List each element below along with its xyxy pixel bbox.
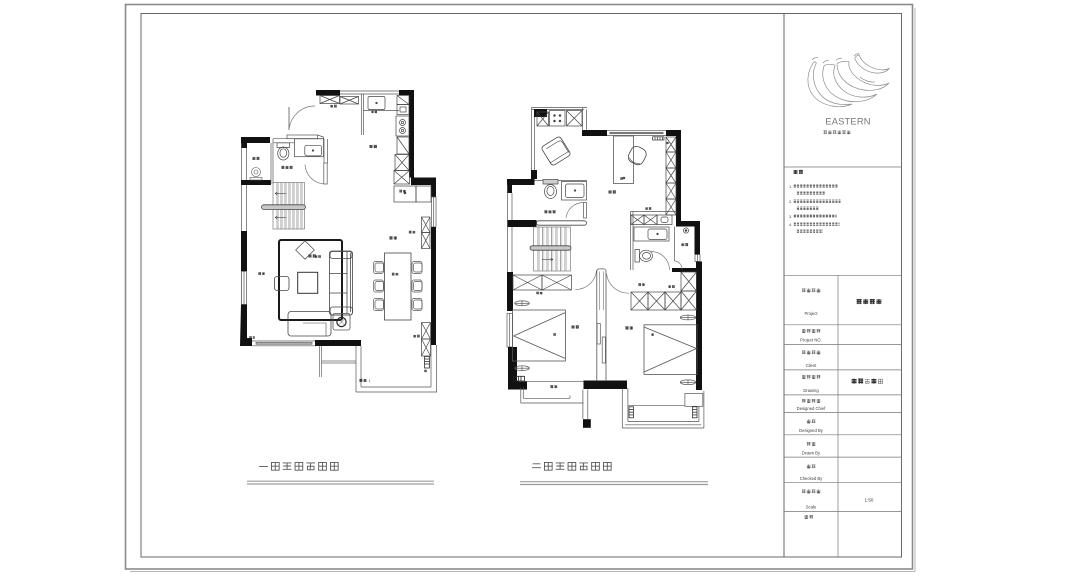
svg-text:Designed By: Designed By — [799, 428, 824, 433]
svg-text:EASTERN: EASTERN — [825, 117, 870, 127]
svg-text:Checked By: Checked By — [800, 476, 823, 481]
svg-text:2.: 2. — [789, 199, 792, 204]
svg-text:Drawing: Drawing — [803, 388, 819, 393]
svg-text:Project: Project — [804, 311, 818, 316]
svg-text:3.: 3. — [789, 214, 792, 219]
svg-text:1:50: 1:50 — [865, 498, 874, 503]
svg-text:Drawn By: Drawn By — [802, 451, 821, 456]
svg-text:Project NO.: Project NO. — [800, 338, 822, 343]
svg-text:1: 1 — [369, 379, 371, 383]
svg-text:4.: 4. — [789, 222, 792, 227]
svg-text:1.: 1. — [789, 184, 792, 189]
svg-text:Client: Client — [806, 363, 818, 368]
svg-text:Scale: Scale — [806, 505, 817, 510]
svg-text:Designed Chief: Designed Chief — [797, 406, 826, 411]
